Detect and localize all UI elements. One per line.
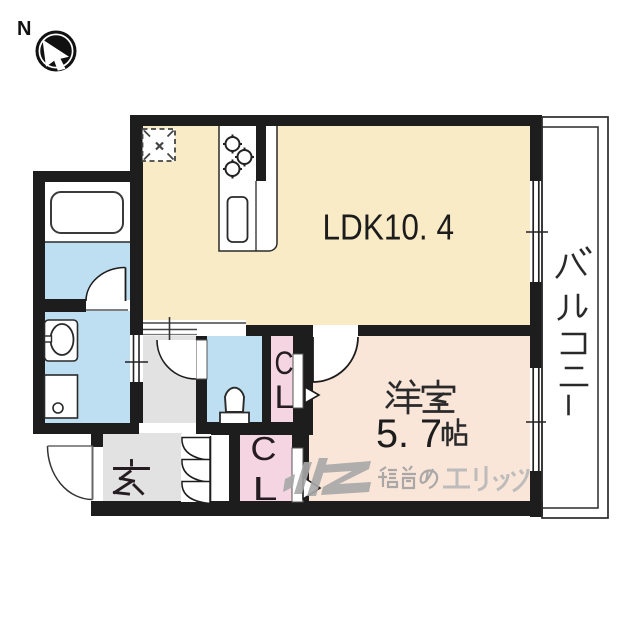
svg-text:L: L [275,379,295,415]
svg-text:L: L [253,470,278,507]
svg-text:LDK10. 4: LDK10. 4 [323,207,455,248]
svg-text:5. 7: 5. 7 [376,412,442,456]
svg-text:N: N [17,18,31,40]
svg-text:C: C [251,430,277,467]
svg-text:C: C [275,345,294,381]
